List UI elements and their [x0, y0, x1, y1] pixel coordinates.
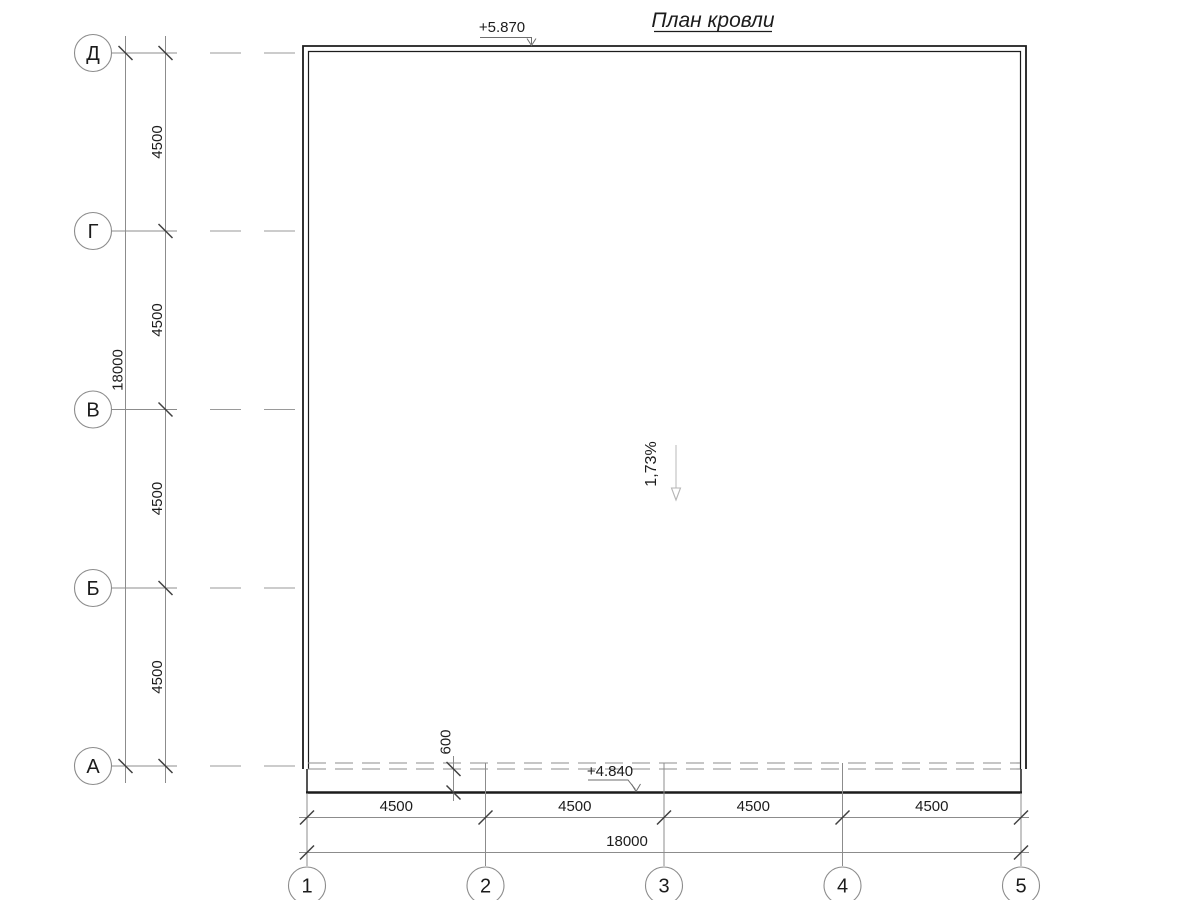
row-axis-bubbles: Д Г В Б А: [75, 35, 112, 785]
axis-label: Д: [86, 43, 100, 65]
dim-value: 600: [438, 729, 455, 754]
dim-total-value: 18000: [606, 833, 648, 850]
axis-label: Г: [88, 221, 99, 243]
dim-value: 4500: [737, 798, 770, 815]
elevation-value: +5.870: [479, 19, 525, 36]
axis-label: Б: [86, 578, 99, 600]
slope-arrow-head-icon: [672, 488, 681, 500]
slope-annotation: 1,73%: [643, 441, 681, 500]
axis-label: 2: [480, 876, 491, 898]
dim-value: 4500: [558, 798, 591, 815]
elevation-mark-bottom: +4.840: [587, 763, 641, 792]
dim-value: 4500: [149, 303, 166, 336]
col-axis-bubbles: 1 2 3 4 5: [289, 867, 1040, 900]
roof-inner-edge: [309, 52, 1021, 770]
elevation-arrow-icon: [632, 784, 641, 792]
row-axis-lines: [112, 53, 303, 766]
eave-overhang-dimension: 600: [438, 729, 461, 801]
roof-plan-drawing: План кровли 4500: [0, 0, 1200, 900]
axis-label: В: [86, 400, 99, 422]
axis-label: 3: [658, 876, 669, 898]
elevation-value: +4.840: [587, 763, 633, 780]
elevation-leader: [480, 38, 532, 45]
dim-value: 4500: [149, 482, 166, 515]
col-extension-lines: [307, 763, 1021, 866]
elevation-mark-top: +5.870: [479, 19, 536, 46]
dim-value: 4500: [915, 798, 948, 815]
dim-value: 4500: [380, 798, 413, 815]
roof-outline: [303, 46, 1026, 793]
axis-label: 1: [301, 876, 312, 898]
elevation-leader: [588, 780, 636, 790]
drawing-title: План кровли: [651, 9, 775, 32]
slope-value: 1,73%: [643, 441, 660, 486]
dim-total-value: 18000: [110, 349, 127, 391]
dim-value: 4500: [149, 125, 166, 158]
axis-label: 4: [837, 876, 848, 898]
roof-outer-edge: [303, 46, 1026, 769]
dim-value: 4500: [149, 660, 166, 693]
axis-label: 5: [1015, 876, 1026, 898]
axis-label: А: [86, 756, 100, 778]
